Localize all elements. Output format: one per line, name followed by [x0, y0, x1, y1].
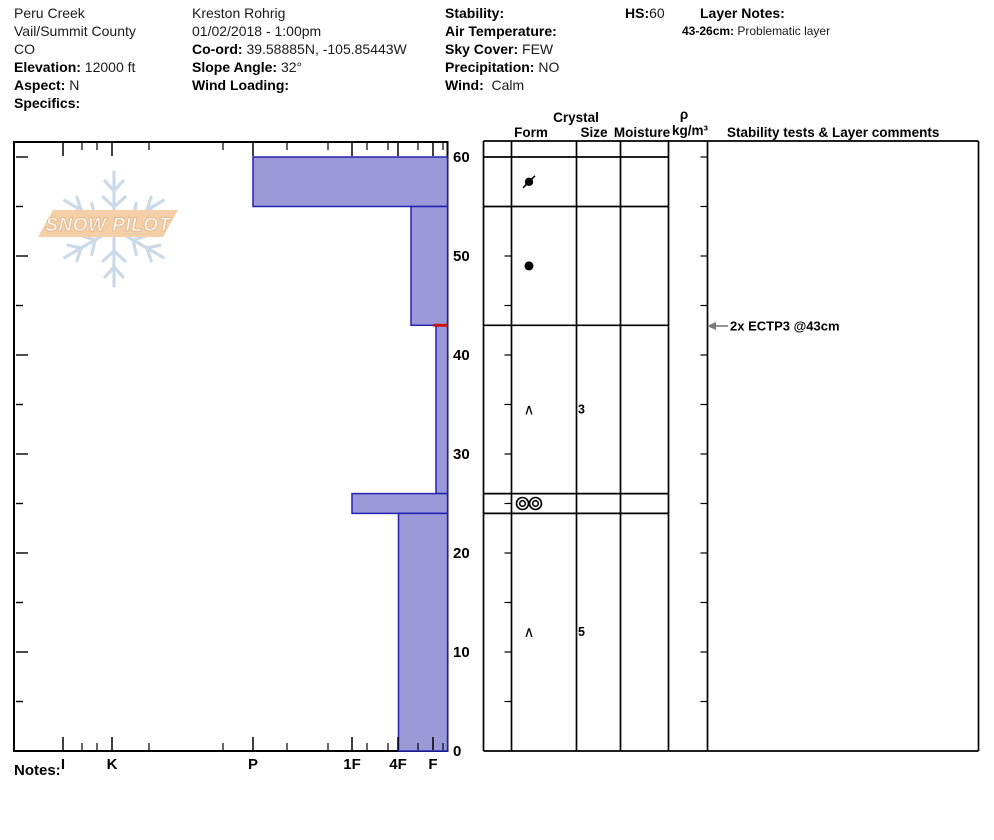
depth-label-40: 40 [453, 347, 470, 364]
column-header-form: Form [514, 125, 548, 140]
depth-label-60: 60 [453, 149, 470, 166]
grain-form-decomposing-icon [523, 176, 535, 188]
depth-label-0: 0 [453, 743, 461, 760]
grain-size-layer5: 5 [578, 625, 585, 639]
column-header-density-units: kg/m³ [672, 123, 709, 138]
hardness-label-1F: 1F [343, 756, 361, 773]
grain-size-layer3: 3 [578, 403, 585, 417]
column-header-moisture: Moisture [614, 125, 671, 140]
grain-form-facets-icon-upper: ∧ [524, 402, 535, 419]
grain-form-facets-icon-lower: ∧ [524, 624, 535, 641]
grain-form-meltfreeze-cluster-icon [517, 498, 542, 510]
logo-text: SNOW PILOT [45, 215, 171, 236]
failure-plane-line [434, 324, 448, 327]
hardness-label-I: I [61, 756, 65, 773]
column-header-crystal: Crystal [553, 110, 599, 125]
column-header-density-rho: ρ [680, 107, 688, 122]
notes-label: Notes: [14, 762, 61, 779]
stability-test-annotation: 2x ECTP3 @43cm [707, 319, 840, 334]
column-header-size: Size [580, 125, 608, 140]
column-header-comments: Stability tests & Layer comments [727, 125, 939, 140]
depth-label-10: 10 [453, 644, 470, 661]
stability-test-text: 2x ECTP3 @43cm [730, 319, 840, 334]
depth-label-20: 20 [453, 545, 470, 562]
hardness-label-4F: 4F [389, 756, 407, 773]
hardness-label-K: K [107, 756, 118, 773]
table-grid [484, 141, 979, 751]
hardness-label-P: P [248, 756, 258, 773]
profile-chart: SNOW PILOT Crystal Form Size Moisture ρ … [0, 0, 994, 840]
grain-form-rounded-icon [525, 261, 534, 270]
hardness-label-F: F [428, 756, 437, 773]
snowpilot-logo: SNOW PILOT [38, 172, 178, 286]
snowpilot-profile-page: Peru Creek Vail/Summit County CO Elevati… [0, 0, 994, 840]
depth-label-50: 50 [453, 248, 470, 265]
depth-label-30: 30 [453, 446, 470, 463]
hardness-layer-bars [253, 157, 448, 751]
